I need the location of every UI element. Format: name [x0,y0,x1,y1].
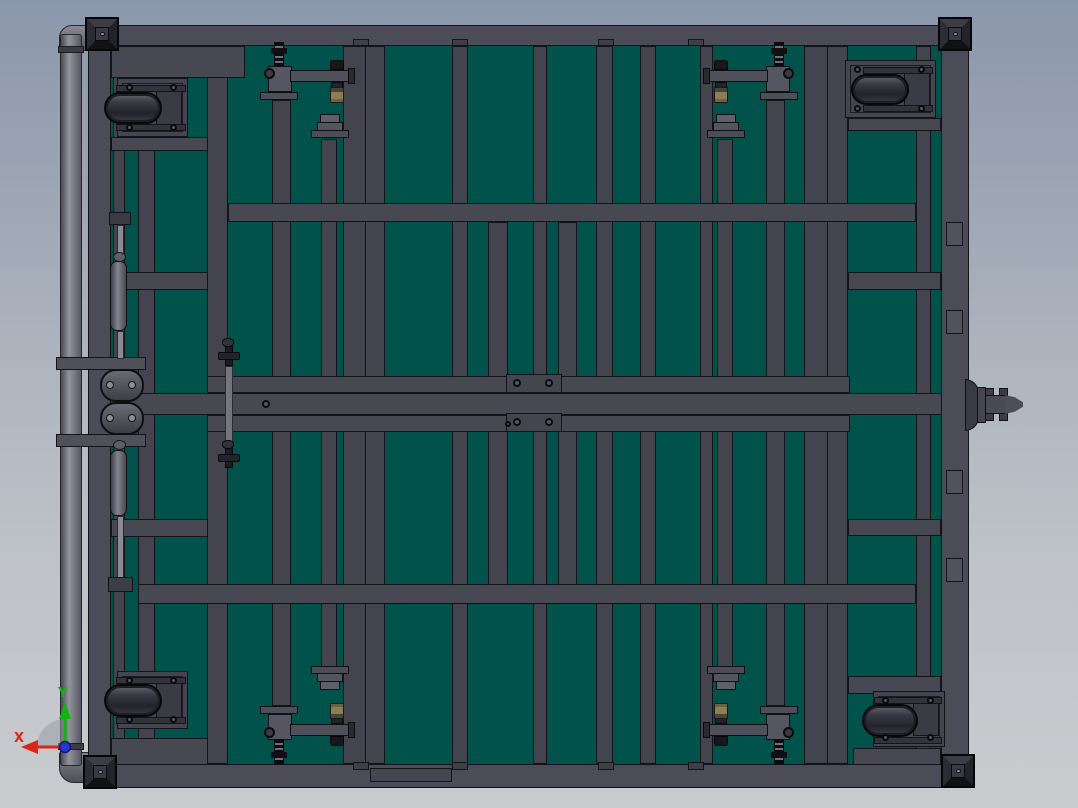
gas-spring-anchor [109,212,131,225]
tow-hitch-shaft [985,395,1007,414]
gas-spring-foot [108,577,133,592]
gas-spring-cylinder [110,450,127,516]
hinge-plate [56,357,146,370]
y-axis-arrowhead [59,702,71,719]
valve-fitting [218,454,240,462]
hinge-bolt [106,414,114,422]
hinge-link [100,402,144,435]
tow-hitch-tip [1005,395,1023,414]
overlay-parts: Y X [0,0,1078,808]
gas-spring-cylinder [110,261,127,331]
hitch-nut [999,413,1008,421]
z-axis-dot [60,742,71,753]
x-axis-label: X [14,731,24,746]
hinge-plate [56,434,146,447]
hinge-bolt [106,381,114,389]
hitch-nut [999,388,1008,396]
hinge-link [100,369,144,402]
orientation-triad: Y X [8,676,108,798]
gas-spring-rod [117,331,124,359]
gas-spring-ball-joint [113,440,126,450]
hitch-nut [985,413,994,421]
hinge-bolt [128,414,136,422]
gas-spring-rod [117,516,124,578]
hinge-bolt [128,381,136,389]
y-axis-label: Y [57,686,68,701]
cad-viewport[interactable]: Y X [0,0,1078,808]
valve-fitting [218,352,240,360]
brace-tube [225,366,233,446]
gas-spring-rod [117,225,124,255]
